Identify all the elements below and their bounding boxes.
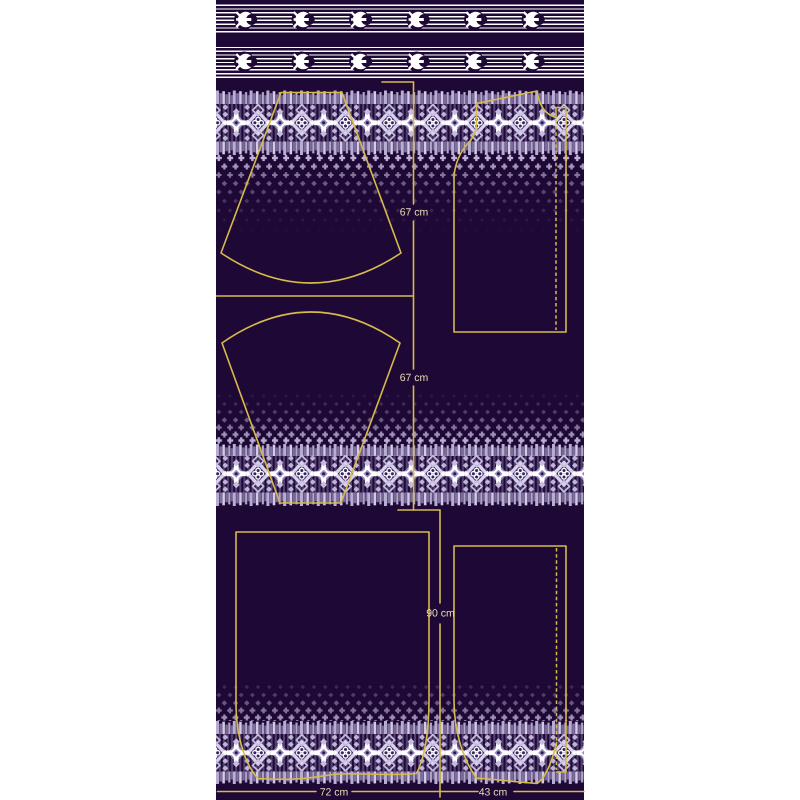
svg-text:67 cm: 67 cm xyxy=(400,207,429,219)
svg-text:67 cm: 67 cm xyxy=(400,372,429,384)
svg-text:43 cm: 43 cm xyxy=(479,787,508,799)
svg-text:90 cm: 90 cm xyxy=(426,608,455,620)
svg-text:72 cm: 72 cm xyxy=(320,787,349,799)
